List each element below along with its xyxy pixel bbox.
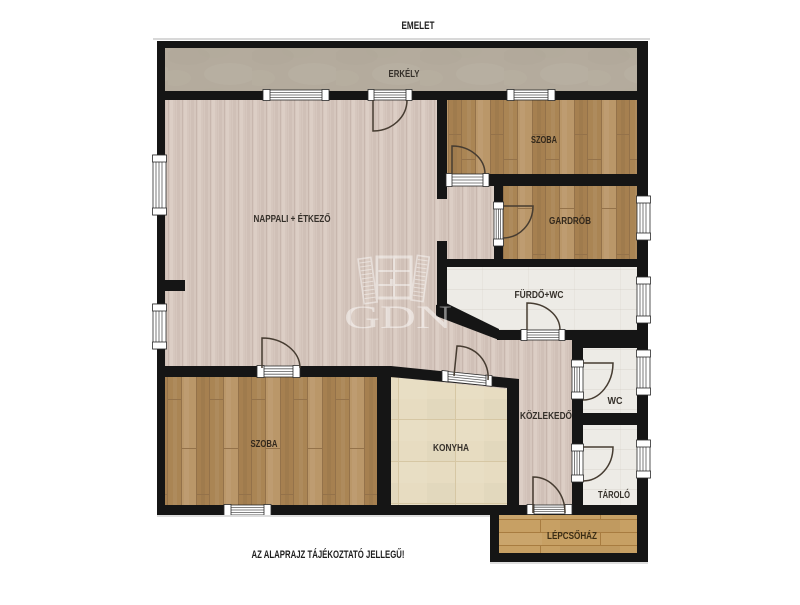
svg-text:ERKÉLY: ERKÉLY [389,67,420,80]
svg-text:EMELET: EMELET [402,20,435,32]
svg-text:TÁROLÓ: TÁROLÓ [598,488,630,501]
svg-text:AZ ALAPRAJZ TÁJÉKOZTATÓ JELLEG: AZ ALAPRAJZ TÁJÉKOZTATÓ JELLEGŰ! [252,548,405,561]
svg-text:WC: WC [608,395,623,407]
svg-text:GDN: GDN [344,300,452,336]
svg-text:SZOBA: SZOBA [531,134,557,146]
svg-text:NAPPALI + ÉTKEZŐ: NAPPALI + ÉTKEZŐ [254,212,331,225]
svg-text:KÖZLEKEDŐ: KÖZLEKEDŐ [520,409,572,422]
svg-text:SZOBA: SZOBA [251,438,278,450]
svg-text:GARDRÓB: GARDRÓB [549,214,591,227]
svg-text:LÉPCSŐHÁZ: LÉPCSŐHÁZ [547,529,597,542]
svg-text:FÜRDŐ+WC: FÜRDŐ+WC [515,288,564,301]
svg-text:KONYHA: KONYHA [433,442,469,454]
